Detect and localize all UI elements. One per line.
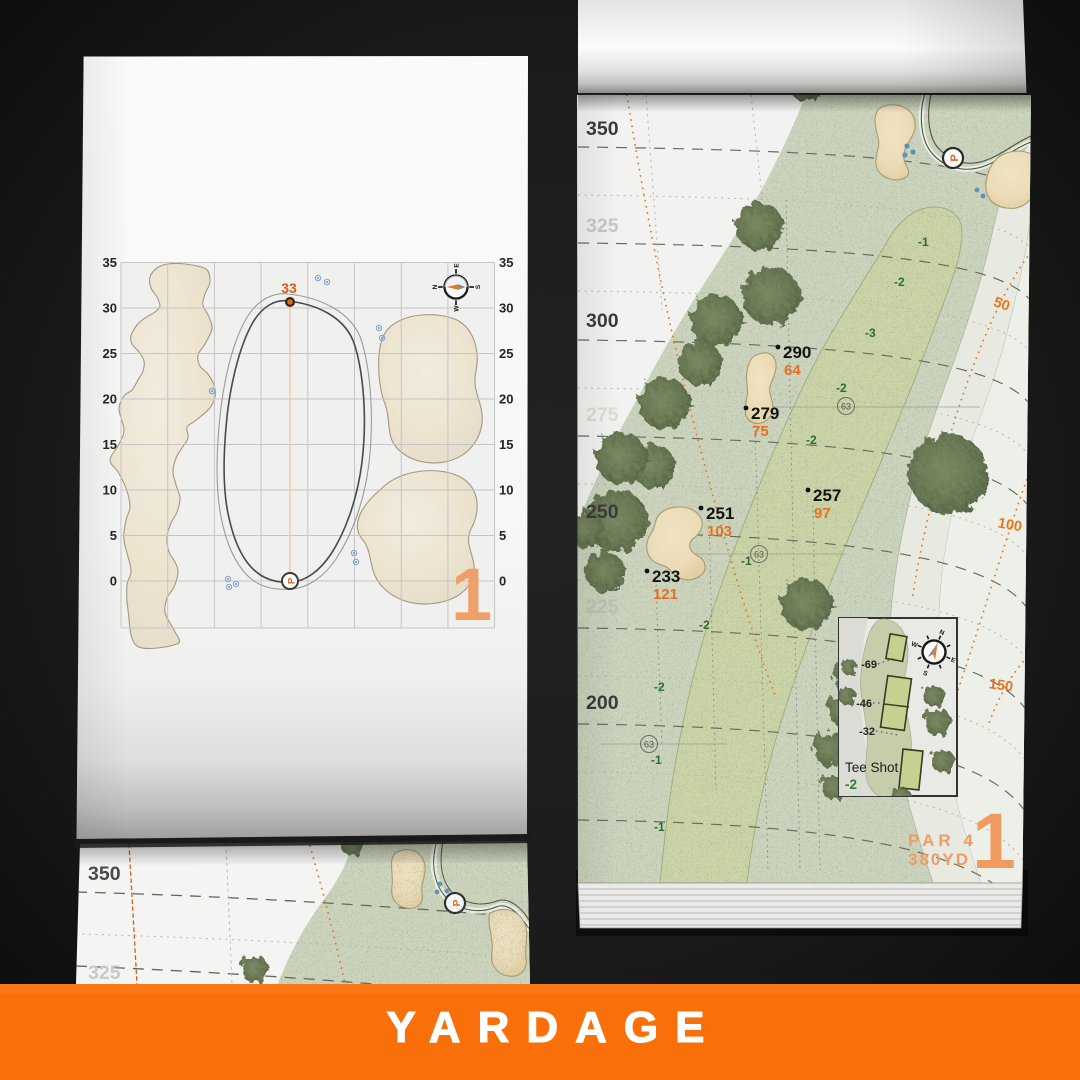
svg-text:-32: -32 xyxy=(859,726,875,738)
svg-text:P: P xyxy=(949,154,961,161)
svg-text:-3: -3 xyxy=(865,326,876,340)
svg-text:25: 25 xyxy=(103,346,117,361)
svg-text:33: 33 xyxy=(281,280,297,296)
svg-text:5: 5 xyxy=(110,528,117,543)
svg-text:290: 290 xyxy=(783,343,811,362)
svg-text:63: 63 xyxy=(841,402,851,412)
svg-text:257: 257 xyxy=(813,486,841,505)
svg-text:380YD: 380YD xyxy=(908,850,970,869)
svg-text:20: 20 xyxy=(103,392,117,407)
svg-text:-2: -2 xyxy=(845,777,857,792)
svg-text:Tee Shot: Tee Shot xyxy=(845,760,899,775)
svg-text:279: 279 xyxy=(751,404,779,423)
svg-text:YARDAGE: YARDAGE xyxy=(387,1003,722,1052)
svg-text:0: 0 xyxy=(110,574,117,589)
svg-text:P: P xyxy=(287,577,298,584)
svg-text:350: 350 xyxy=(88,863,121,885)
svg-text:W: W xyxy=(453,305,460,312)
svg-text:97: 97 xyxy=(814,505,831,522)
svg-text:103: 103 xyxy=(707,523,732,540)
svg-text:63: 63 xyxy=(644,740,654,750)
svg-text:E: E xyxy=(453,263,460,268)
svg-text:PAR 4: PAR 4 xyxy=(908,831,977,850)
svg-text:10: 10 xyxy=(103,483,117,498)
svg-text:-2: -2 xyxy=(894,275,905,289)
svg-text:150: 150 xyxy=(988,676,1014,695)
svg-text:1: 1 xyxy=(451,553,492,636)
svg-text:30: 30 xyxy=(103,301,117,316)
svg-text:233: 233 xyxy=(652,567,680,586)
svg-text:-69: -69 xyxy=(861,659,877,671)
svg-text:-2: -2 xyxy=(836,381,847,395)
svg-text:-2: -2 xyxy=(699,618,710,632)
svg-text:-1: -1 xyxy=(654,820,665,834)
svg-text:15: 15 xyxy=(103,437,117,452)
svg-text:-2: -2 xyxy=(654,680,665,694)
svg-text:0: 0 xyxy=(499,574,506,589)
svg-text:N: N xyxy=(432,284,439,289)
svg-text:-2: -2 xyxy=(806,433,817,447)
svg-text:-1: -1 xyxy=(651,753,662,767)
svg-text:1: 1 xyxy=(972,796,1016,885)
svg-text:-46: -46 xyxy=(856,698,872,710)
svg-text:35: 35 xyxy=(103,255,117,270)
svg-text:63: 63 xyxy=(754,550,764,560)
svg-text:-1: -1 xyxy=(918,235,929,249)
svg-text:35: 35 xyxy=(499,255,513,270)
svg-text:325: 325 xyxy=(88,962,121,984)
svg-text:20: 20 xyxy=(499,392,513,407)
svg-text:121: 121 xyxy=(653,586,678,603)
svg-text:5: 5 xyxy=(499,528,506,543)
svg-text:30: 30 xyxy=(499,301,513,316)
svg-text:S: S xyxy=(475,284,482,289)
svg-text:25: 25 xyxy=(499,346,513,361)
svg-text:64: 64 xyxy=(784,362,801,379)
svg-text:10: 10 xyxy=(499,483,513,498)
svg-text:15: 15 xyxy=(499,437,513,452)
svg-text:251: 251 xyxy=(706,504,734,523)
svg-text:75: 75 xyxy=(752,423,769,440)
